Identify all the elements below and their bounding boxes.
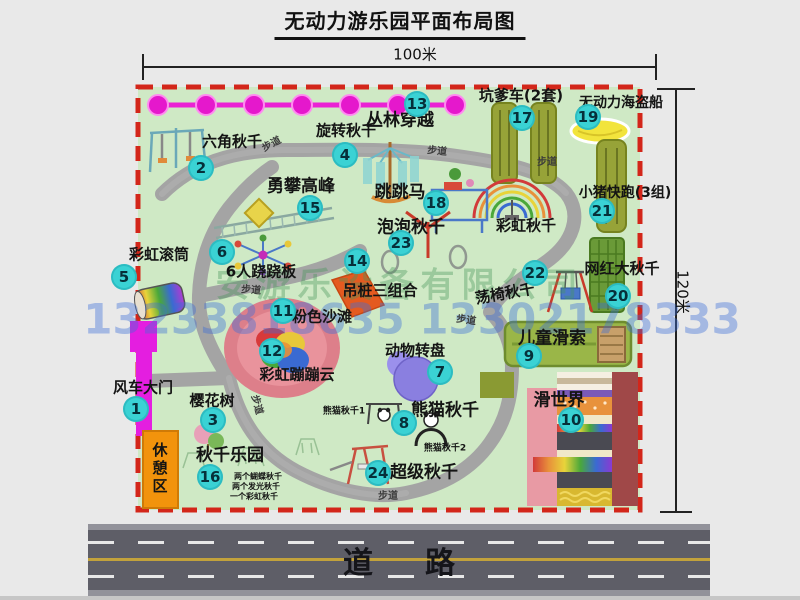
label-climbing-peak: 勇攀高峰 <box>267 179 335 196</box>
badge-9: 9 <box>516 343 542 369</box>
label-seesaw: 6人跷跷板 <box>226 265 296 280</box>
badge-4: 4 <box>332 142 358 168</box>
badge-11: 11 <box>270 298 296 324</box>
path-label: 步道 <box>427 146 448 158</box>
badge-14: 14 <box>344 248 370 274</box>
badge-17: 17 <box>509 105 535 131</box>
label-pit-cart: 坑爹车(2套) <box>479 89 563 104</box>
label-jumping-horse: 跳跳马 <box>375 185 426 202</box>
badge-15: 15 <box>297 195 323 221</box>
path-label: 步道 <box>378 492 398 502</box>
road-label: 道路 <box>291 538 507 582</box>
badge-16: 16 <box>197 464 223 490</box>
label-hanging-piles: 吊桩三组合 <box>342 284 417 299</box>
label-slide-world: 滑世界 <box>534 393 585 410</box>
label-panda-swing-2: 熊猫秋千2 <box>424 445 466 454</box>
badge-24: 24 <box>365 460 391 486</box>
badge-5: 5 <box>111 264 137 290</box>
badge-19: 19 <box>575 104 601 130</box>
label-animal-turntable: 动物转盘 <box>385 344 445 359</box>
badge-6: 6 <box>209 239 235 265</box>
badge-21: 21 <box>589 198 615 224</box>
page-title: 无动力游乐园平面布局图 <box>275 5 526 40</box>
label-net-swing: 网红大秋千 <box>584 262 659 277</box>
dimension-height-label: 120米 <box>673 270 694 314</box>
label-piggy-run: 小猪快跑(3组) <box>579 186 672 200</box>
label-pink-beach: 粉色沙滩 <box>292 310 352 325</box>
badge-20: 20 <box>605 283 631 309</box>
bottom-edge <box>0 596 800 600</box>
label-hexagon-swing: 六角秋千 <box>202 135 262 150</box>
rest-area-label: 休憩区 <box>150 442 171 496</box>
badge-13: 13 <box>404 91 430 117</box>
rainbow-swing-label: 彩虹秋千 <box>496 219 556 234</box>
dimension-width-label: 100米 <box>393 44 437 65</box>
label-rainbow-cloud: 彩虹蹦蹦云 <box>259 368 334 383</box>
badge-23: 23 <box>388 230 414 256</box>
label-swing-park: 秋千乐园 <box>196 448 264 465</box>
label-panda-swing: 熊猫秋千 <box>411 403 479 420</box>
badge-7: 7 <box>427 359 453 385</box>
label-swing-park-item-3: 一个彩虹秋千 <box>230 493 278 501</box>
badge-2: 2 <box>188 155 214 181</box>
label-swing-park-item-1: 两个蝴蝶秋千 <box>234 473 282 481</box>
badge-10: 10 <box>558 407 584 433</box>
label-panda-swing-1: 熊猫秋千1 <box>323 408 365 417</box>
badge-22: 22 <box>522 260 548 286</box>
badge-3: 3 <box>200 407 226 433</box>
badge-8: 8 <box>391 410 417 436</box>
badge-1: 1 <box>123 396 149 422</box>
badge-12: 12 <box>259 338 285 364</box>
badge-18: 18 <box>423 190 449 216</box>
label-rainbow-roller: 彩虹滚筒 <box>129 248 189 263</box>
label-windmill-gate: 风车大门 <box>113 381 173 396</box>
park-map-poster: 安游乐设备有限公司 13233818635 13302178333 无动力游乐园… <box>0 0 800 600</box>
watermark-phones: 13233818635 13302178333 <box>83 295 741 344</box>
label-swing-park-item-2: 两个发光秋千 <box>232 483 280 491</box>
label-super-swing: 超级秋千 <box>390 465 458 482</box>
path-label: 步道 <box>241 285 262 296</box>
road: 道路 <box>88 524 710 596</box>
path-label: 步道 <box>537 158 557 168</box>
